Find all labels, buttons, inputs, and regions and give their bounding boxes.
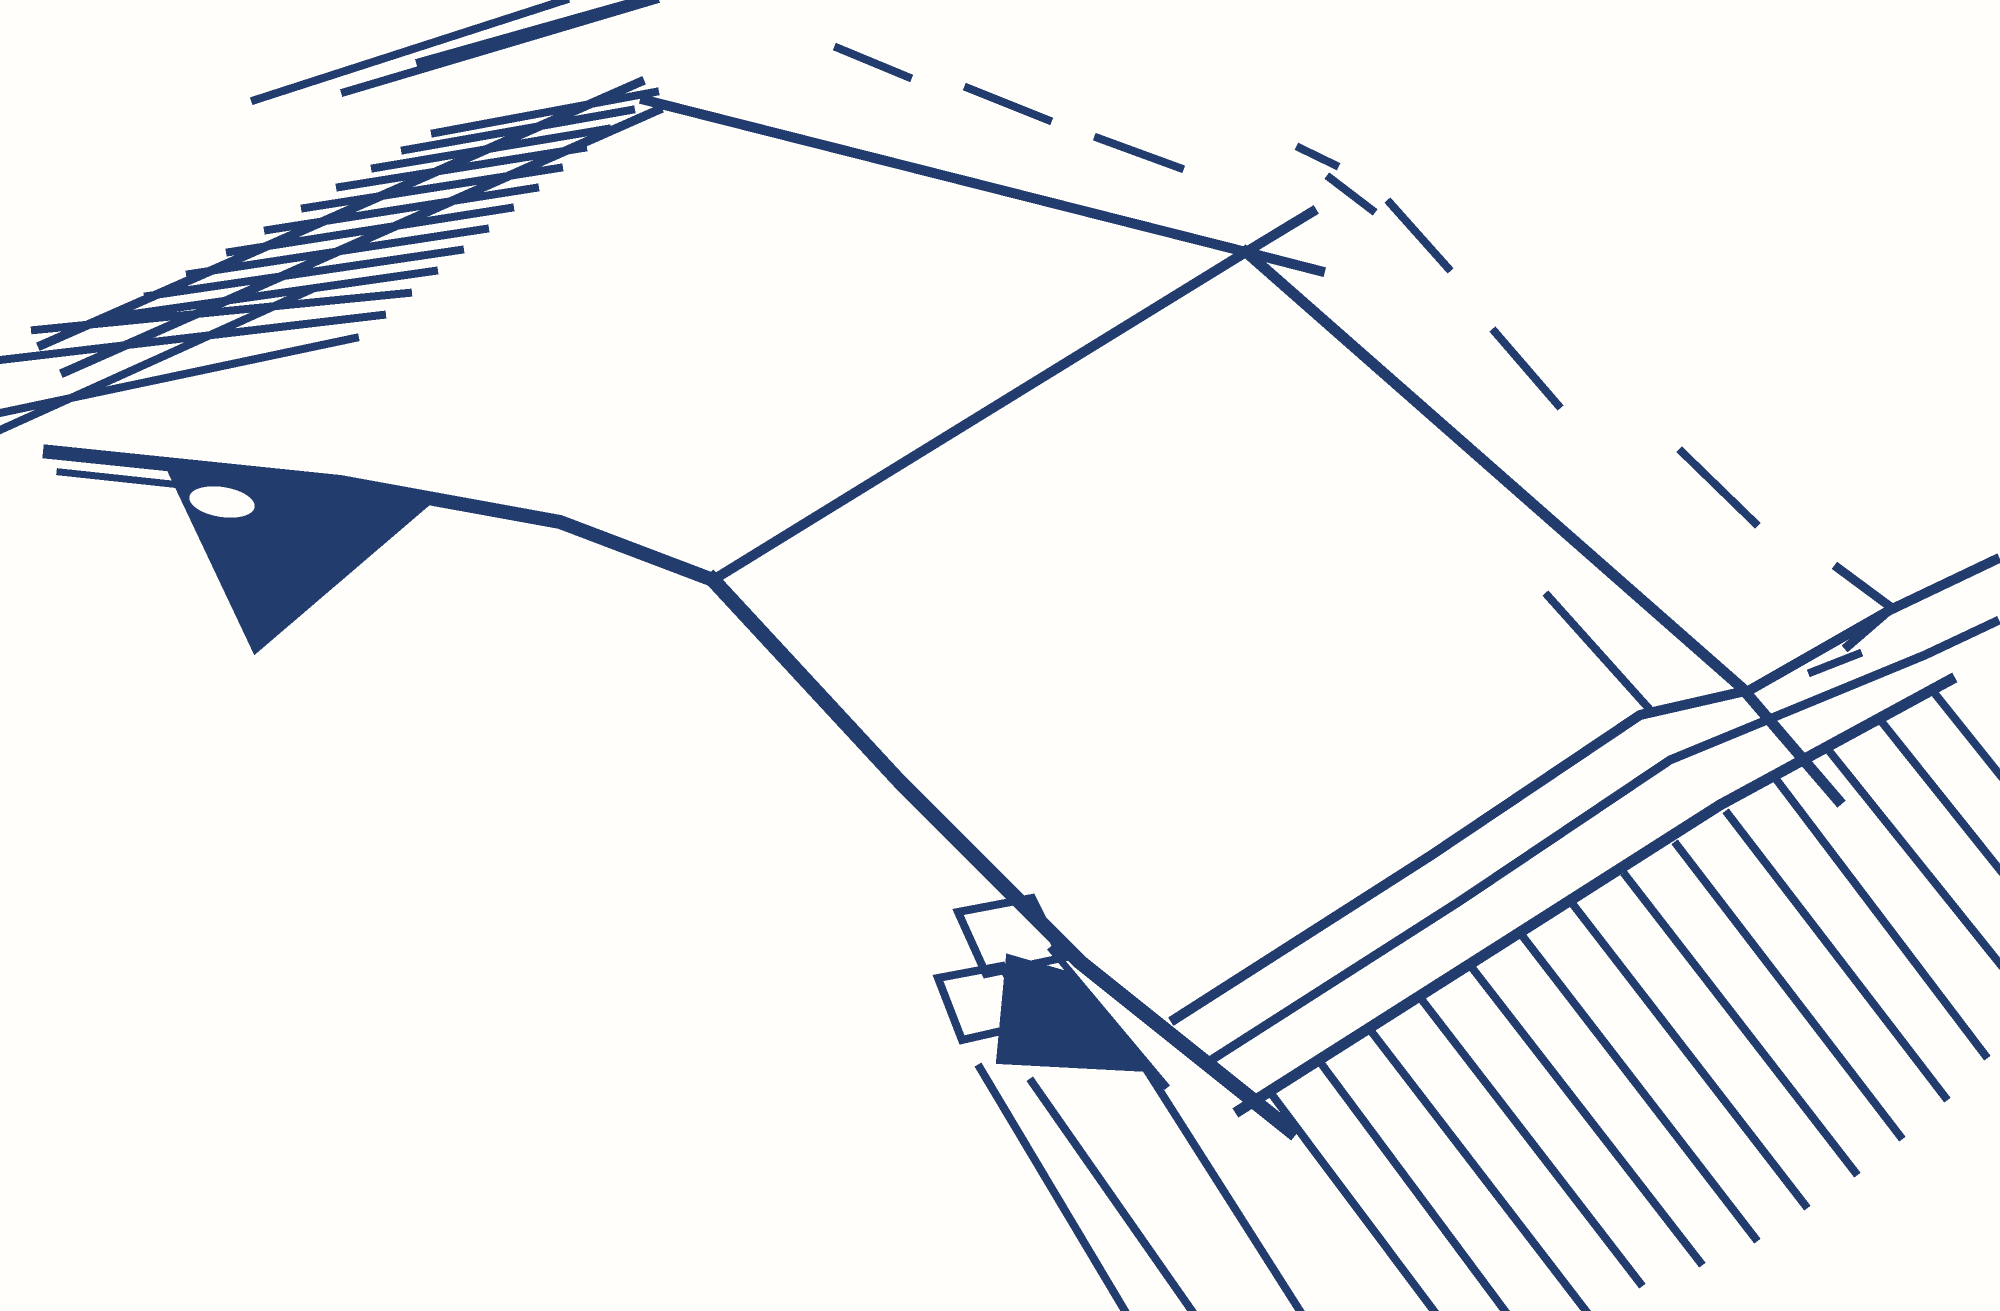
ic-package-illustration	[0, 0, 2000, 1311]
ic-package-drawing-svg	[0, 0, 2000, 1311]
